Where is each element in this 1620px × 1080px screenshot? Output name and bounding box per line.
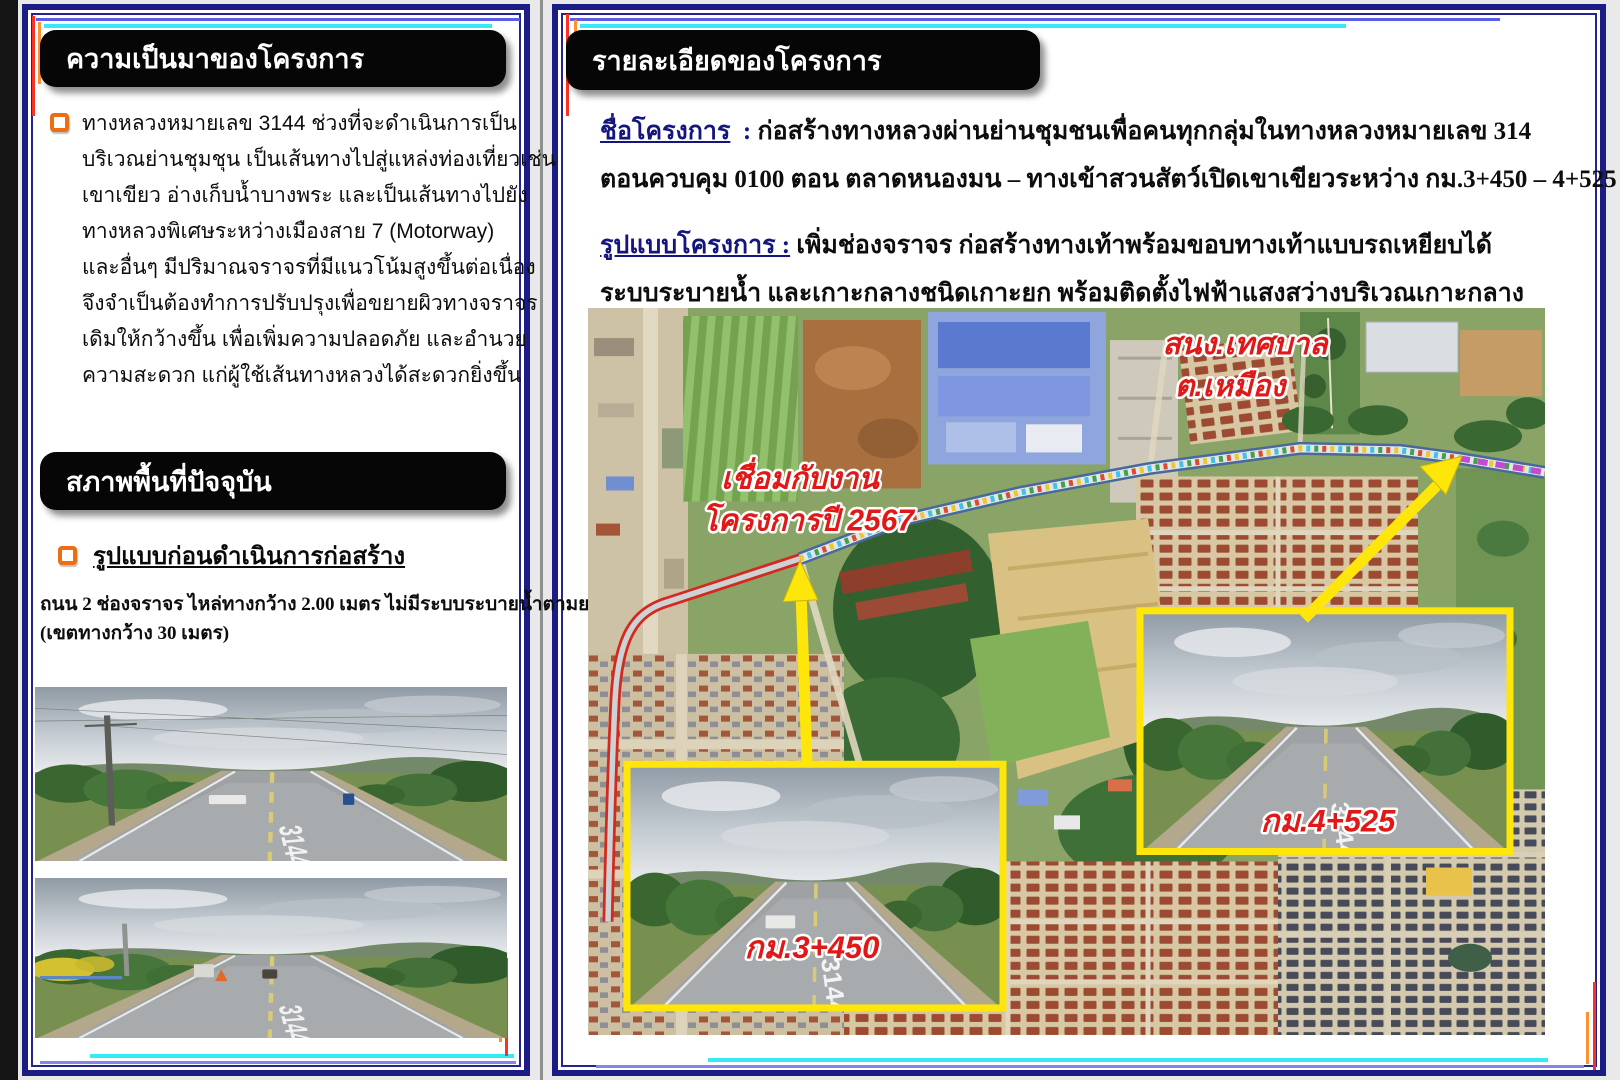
left-panel: ความเป็นมาของโครงการ ทางหลวงหมายเลข 3144… (22, 4, 530, 1076)
deco-blue-line-top (36, 18, 520, 21)
project-name-label: ชื่อโครงการ (600, 118, 730, 145)
deco-red-line-bottom (1593, 982, 1596, 1070)
street-light-pole (124, 924, 126, 976)
project-name-line2: ตอนควบคุม 0100 ตอน ตลาดหนองมน – ทางเข้าส… (600, 156, 1590, 204)
orange-checkbox-bullet-icon (50, 113, 69, 132)
deco-red-line-top (32, 16, 35, 116)
map-inset-photo-km4525: กม.4+525 (1136, 611, 1518, 861)
satellite-map: กม.3+450 กม.4+525 สนง.เทศบาล ต.เห (588, 308, 1545, 1035)
map-label-municipality-line1: สนง.เทศบาล (1162, 328, 1329, 361)
map-label-municipality-line2: ต.เหมือง (1175, 370, 1288, 403)
inset2-km-label: กม.4+525 (1261, 803, 1397, 838)
deco-cyan-line-top (580, 24, 1346, 28)
deco-cyan-line-top (44, 24, 492, 28)
deco-cyan-line-bottom (90, 1054, 514, 1058)
existing-road-photo-2 (35, 878, 507, 1038)
map-label-connect-line1: เชื่อมกับงาน (721, 456, 880, 495)
current-condition-lines: ถนน 2 ช่องจราจร ไหล่ทางกว้าง 2.00 เมตร ไ… (40, 590, 514, 648)
road-sign (194, 964, 214, 977)
pickup-truck (209, 795, 246, 804)
deco-blue-line-bottom (40, 1061, 516, 1064)
background-paragraph-text: ทางหลวงหมายเลข 3144 ช่วงที่จะดำเนินการเป… (82, 106, 512, 394)
project-name-line1: ก่อสร้างทางหลวงผ่านย่านชุมชนเพื่อคนทุกกล… (757, 118, 1531, 145)
project-form-label: รูปแบบโครงการ : (600, 232, 790, 259)
section-header-background-label: ความเป็นมาของโครงการ (66, 37, 364, 80)
project-form-paragraph: รูปแบบโครงการ : เพิ่มช่องจราจร ก่อสร้างท… (600, 222, 1600, 318)
background-paragraph: ทางหลวงหมายเลข 3144 ช่วงที่จะดำเนินการเป… (50, 106, 512, 394)
map-label-connect-line2: โครงการปี 2567 (702, 503, 915, 538)
map-courtyard (1426, 868, 1472, 896)
project-form-line1: เพิ่มช่องจราจร ก่อสร้างทางเท้าพร้อมขอบทา… (796, 232, 1492, 259)
blue-railing (40, 976, 122, 979)
page-left-black-edge (0, 0, 18, 1080)
trash-bin (343, 794, 354, 805)
existing-road-photo-1 (35, 687, 507, 861)
deco-cyan-line-bottom (708, 1058, 1548, 1062)
section-header-project-details: รายละเอียดของโครงการ (566, 30, 1040, 90)
map-inset-photo-km3450: กม.3+450 (623, 764, 1011, 1017)
vehicle (262, 969, 277, 978)
document-page: { "doc": { "type": "โปสเตอร์ประชาสัมพันธ… (0, 0, 1620, 1080)
map-pond (1448, 944, 1492, 972)
pre-construction-subheading-label: รูปแบบก่อนดำเนินการก่อสร้าง (93, 536, 405, 575)
deco-blue-line-top (570, 18, 1500, 21)
section-header-background: ความเป็นมาของโครงการ (40, 30, 506, 87)
deco-blue-line-bottom (596, 1065, 1584, 1068)
section-header-current-condition-label: สภาพพื้นที่ปัจจุบัน (66, 460, 272, 503)
inset1-km-label: กม.3+450 (745, 930, 880, 965)
current-condition-text: ถนน 2 ช่องจราจร ไหล่ทางกว้าง 2.00 เมตร ไ… (40, 590, 514, 648)
map-blue-factory (928, 312, 1106, 464)
section-header-project-details-label: รายละเอียดของโครงการ (592, 39, 881, 82)
pre-construction-subheading: รูปแบบก่อนดำเนินการก่อสร้าง (58, 536, 405, 575)
map-construction-site (1460, 330, 1542, 396)
project-name-paragraph: ชื่อโครงการ : ก่อสร้างทางหลวงผ่านย่านชุม… (600, 108, 1590, 204)
deco-orange-line-bottom (1586, 1012, 1589, 1064)
orange-checkbox-bullet-icon (58, 546, 77, 565)
right-panel: รายละเอียดของโครงการ ชื่อโครงการ : ก่อสร… (552, 4, 1606, 1076)
section-header-current-condition: สภาพพื้นที่ปัจจุบัน (40, 452, 506, 510)
project-name-colon: : (730, 118, 757, 145)
